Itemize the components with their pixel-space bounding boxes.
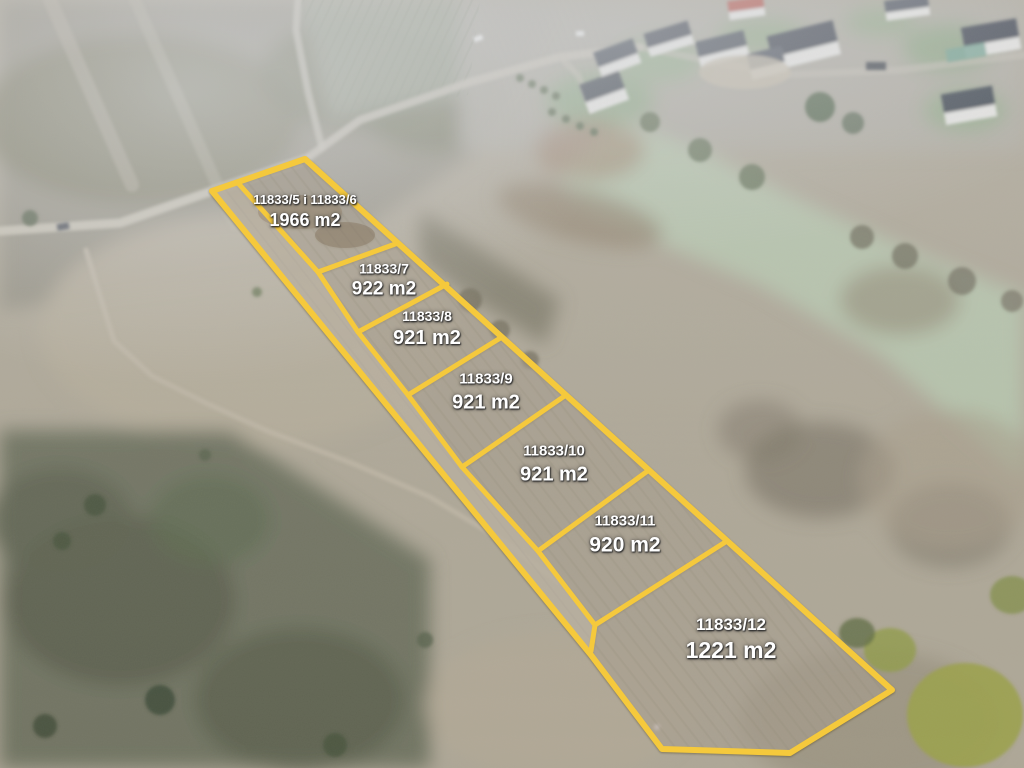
aerial-photo-container: 11833/5 i 11833/61966 m211833/7922 m2118… bbox=[0, 0, 1024, 768]
parcel-strip-harrow-texture bbox=[212, 159, 892, 753]
parcel-boundary-overlay bbox=[0, 0, 1024, 768]
dirt-patch bbox=[315, 222, 375, 248]
